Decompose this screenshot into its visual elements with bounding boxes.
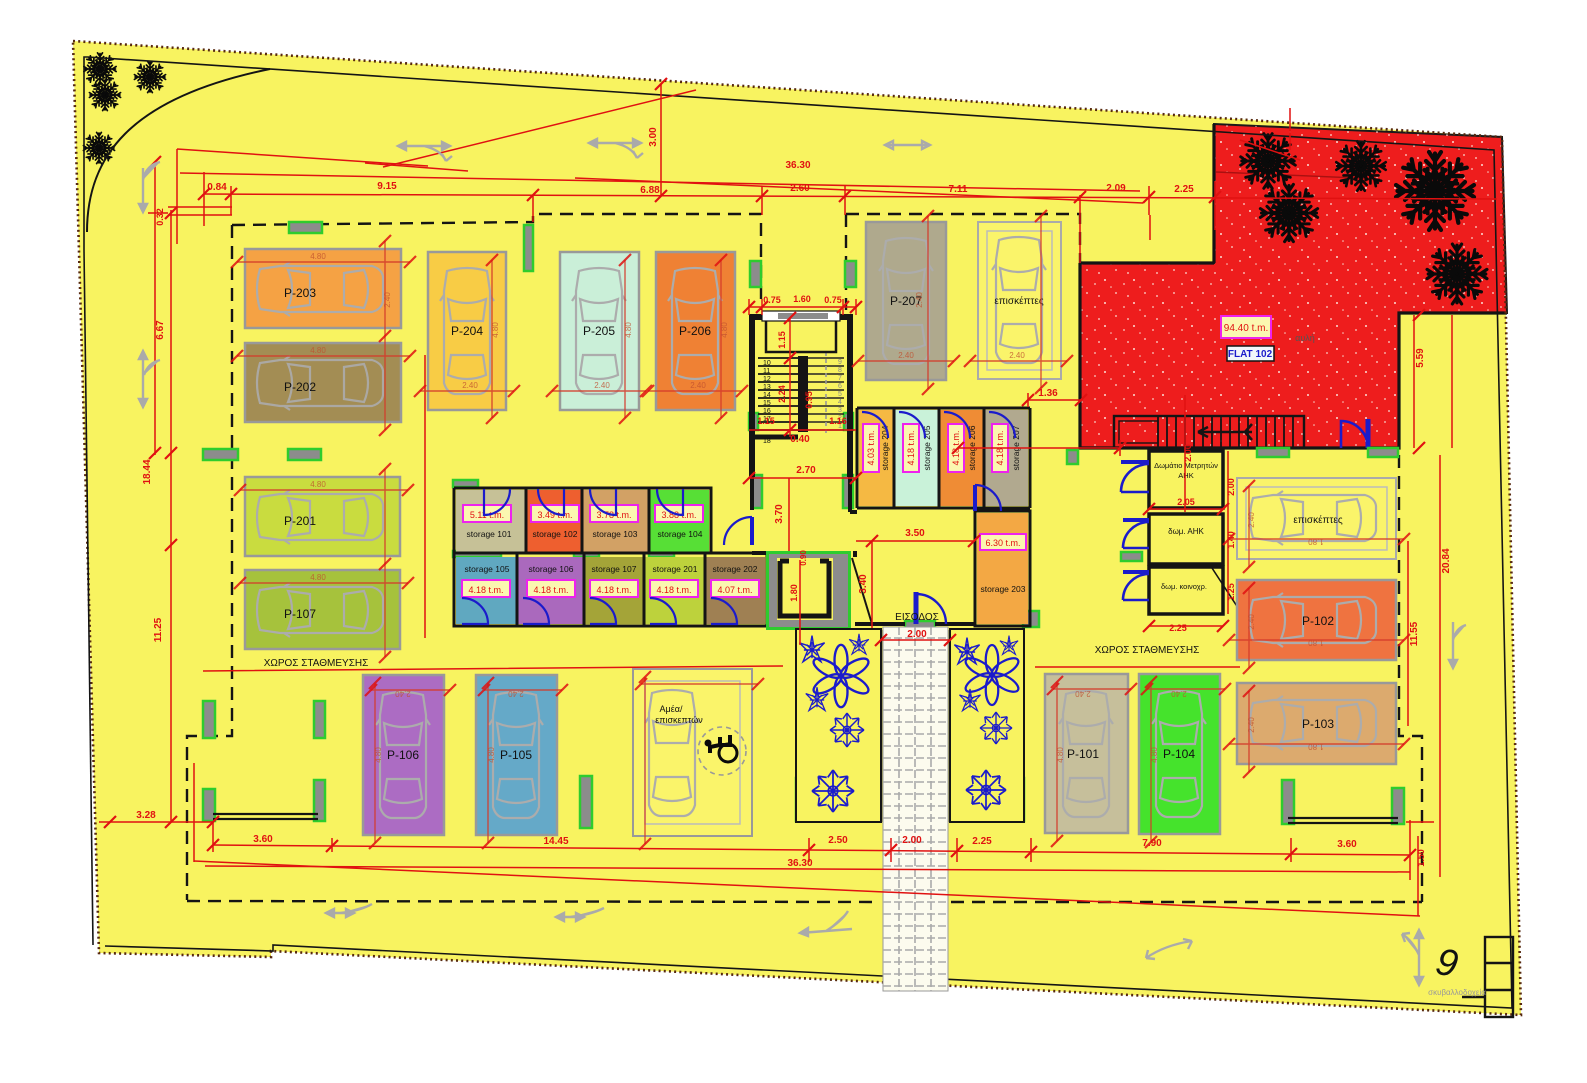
- svg-text:4: 4: [838, 399, 842, 406]
- svg-text:1.15: 1.15: [757, 416, 775, 426]
- svg-text:16: 16: [763, 408, 771, 415]
- svg-text:14.45: 14.45: [543, 836, 568, 847]
- svg-text:2.40: 2.40: [383, 292, 392, 308]
- svg-text:2.70: 2.70: [796, 465, 816, 476]
- svg-text:P-102: P-102: [1302, 614, 1334, 628]
- svg-text:4.18 t.m.: 4.18 t.m.: [656, 585, 691, 595]
- svg-text:P-107: P-107: [284, 607, 316, 621]
- svg-text:2.40: 2.40: [915, 292, 924, 308]
- svg-text:FLAT 102: FLAT 102: [1228, 349, 1273, 360]
- svg-text:2.40: 2.40: [1247, 717, 1256, 733]
- svg-text:13: 13: [763, 384, 771, 391]
- svg-text:7.11: 7.11: [949, 184, 968, 195]
- svg-text:ΧΩΡΟΣ ΣΤΑΘΜΕΥΣΗΣ: ΧΩΡΟΣ ΣΤΑΘΜΕΥΣΗΣ: [264, 658, 369, 669]
- svg-text:0.84: 0.84: [207, 182, 227, 193]
- svg-text:9.15: 9.15: [377, 181, 397, 192]
- svg-text:5.59: 5.59: [1415, 348, 1426, 368]
- svg-text:4.03 t.m.: 4.03 t.m.: [866, 430, 876, 465]
- svg-text:3.60: 3.60: [253, 834, 273, 845]
- svg-text:2.50: 2.50: [828, 835, 848, 846]
- svg-text:storage 106: storage 106: [529, 564, 574, 574]
- svg-text:storage 102: storage 102: [533, 529, 578, 539]
- svg-text:P-103: P-103: [1302, 717, 1334, 731]
- svg-text:5: 5: [838, 391, 842, 398]
- svg-text:4.80: 4.80: [487, 747, 496, 763]
- svg-text:4.80: 4.80: [310, 480, 326, 489]
- svg-text:2.25: 2.25: [972, 836, 992, 847]
- svg-text:4.07 t.m.: 4.07 t.m.: [717, 585, 752, 595]
- svg-text:2.05: 2.05: [1177, 497, 1195, 507]
- svg-text:36.30: 36.30: [785, 160, 810, 171]
- svg-text:3.28: 3.28: [136, 810, 156, 821]
- svg-text:14: 14: [763, 392, 771, 399]
- svg-text:2.00: 2.00: [1226, 478, 1236, 496]
- svg-text:11: 11: [763, 368, 770, 375]
- svg-text:2.60: 2.60: [790, 183, 810, 194]
- svg-text:P-106: P-106: [387, 748, 419, 762]
- svg-text:0.95: 0.95: [804, 391, 814, 409]
- svg-text:P-203: P-203: [284, 286, 316, 300]
- svg-text:7: 7: [838, 375, 842, 382]
- svg-text:0.40: 0.40: [790, 434, 810, 445]
- svg-text:2.40: 2.40: [1171, 689, 1187, 698]
- svg-text:3.40: 3.40: [858, 574, 869, 594]
- svg-text:3: 3: [838, 407, 842, 414]
- svg-text:0.32: 0.32: [155, 208, 165, 226]
- svg-text:storage 202: storage 202: [713, 564, 758, 574]
- svg-text:2.00: 2.00: [1183, 444, 1193, 462]
- svg-text:ΕΙΣΟΔΟΣ: ΕΙΣΟΔΟΣ: [895, 612, 939, 623]
- svg-text:2.24: 2.24: [777, 385, 787, 403]
- svg-text:4.80: 4.80: [720, 322, 729, 338]
- svg-text:P-104: P-104: [1163, 747, 1195, 761]
- svg-text:6.88: 6.88: [640, 185, 660, 196]
- svg-text:P-101: P-101: [1067, 747, 1099, 761]
- svg-text:επισκέπτες: επισκέπτες: [994, 295, 1044, 307]
- svg-text:επισκεπτών: επισκεπτών: [655, 715, 703, 725]
- svg-text:2.40: 2.40: [690, 381, 706, 390]
- svg-text:storage 105: storage 105: [465, 564, 510, 574]
- svg-text:1.25: 1.25: [1226, 583, 1236, 601]
- svg-text:12: 12: [763, 376, 771, 383]
- svg-text:11.25: 11.25: [153, 617, 164, 642]
- svg-text:P-204: P-204: [451, 324, 483, 338]
- svg-text:2.40: 2.40: [508, 689, 524, 698]
- svg-text:1.16: 1.16: [829, 416, 847, 426]
- svg-text:0.75: 0.75: [763, 295, 781, 305]
- svg-text:2.40: 2.40: [594, 381, 610, 390]
- svg-text:4.80: 4.80: [1150, 747, 1159, 763]
- svg-text:1.36: 1.36: [1038, 388, 1058, 399]
- svg-text:4.80: 4.80: [491, 322, 500, 338]
- svg-text:P-201: P-201: [284, 514, 316, 528]
- svg-text:3.60: 3.60: [1337, 839, 1357, 850]
- svg-text:4.80: 4.80: [1056, 747, 1065, 763]
- svg-text:1.80: 1.80: [1308, 638, 1324, 647]
- svg-text:4.80: 4.80: [310, 573, 326, 582]
- svg-text:2.25: 2.25: [1169, 623, 1187, 633]
- svg-text:2.40: 2.40: [462, 381, 478, 390]
- svg-text:2.00: 2.00: [902, 835, 922, 846]
- svg-text:2.40: 2.40: [395, 689, 411, 698]
- svg-text:4.18 t.m.: 4.18 t.m.: [533, 585, 568, 595]
- svg-text:1.15: 1.15: [777, 331, 787, 349]
- svg-text:2.00: 2.00: [907, 629, 927, 640]
- svg-text:2.40: 2.40: [1009, 351, 1025, 360]
- svg-text:P-202: P-202: [284, 380, 316, 394]
- svg-text:4.80: 4.80: [374, 747, 383, 763]
- svg-text:επισκέπτες: επισκέπτες: [1293, 514, 1343, 526]
- svg-text:4.18 t.m.: 4.18 t.m.: [906, 430, 916, 465]
- svg-text:δωμ. ΑΗΚ: δωμ. ΑΗΚ: [1168, 527, 1204, 536]
- svg-text:σκυβαλλοδοχεία: σκυβαλλοδοχεία: [1428, 988, 1486, 997]
- svg-text:10: 10: [763, 360, 771, 367]
- svg-text:4.80: 4.80: [624, 322, 633, 338]
- svg-text:2.09: 2.09: [1106, 183, 1126, 194]
- svg-text:2.40: 2.40: [1075, 689, 1091, 698]
- svg-text:1.60: 1.60: [793, 294, 811, 304]
- svg-text:2.40: 2.40: [898, 351, 914, 360]
- svg-text:6.30 t.m.: 6.30 t.m.: [985, 538, 1020, 548]
- svg-text:storage 104: storage 104: [658, 529, 703, 539]
- svg-text:ΑΗΚ: ΑΗΚ: [1178, 471, 1193, 480]
- svg-text:11.55: 11.55: [1409, 621, 1420, 646]
- svg-text:1.80: 1.80: [1308, 537, 1324, 546]
- svg-text:δωμ. κοινοχρ.: δωμ. κοινοχρ.: [1161, 582, 1207, 591]
- svg-text:P-105: P-105: [500, 748, 532, 762]
- svg-text:ΧΩΡΟΣ ΣΤΑΘΜΕΥΣΗΣ: ΧΩΡΟΣ ΣΤΑΘΜΕΥΣΗΣ: [1095, 645, 1200, 656]
- svg-text:P-205: P-205: [583, 324, 615, 338]
- svg-text:3.49 t.m.: 3.49 t.m.: [537, 510, 572, 520]
- svg-text:18.44: 18.44: [142, 459, 153, 484]
- svg-text:3.50: 3.50: [905, 528, 925, 539]
- svg-text:94.40 t.m.: 94.40 t.m.: [1224, 323, 1268, 334]
- svg-text:2.40: 2.40: [1247, 512, 1256, 528]
- svg-text:storage 101: storage 101: [467, 529, 512, 539]
- svg-text:3.00: 3.00: [648, 127, 659, 147]
- svg-text:4.18 t.m.: 4.18 t.m.: [468, 585, 503, 595]
- svg-text:storage 201: storage 201: [653, 564, 698, 574]
- svg-text:2.40: 2.40: [1247, 614, 1256, 630]
- svg-text:4.80: 4.80: [310, 252, 326, 261]
- svg-text:0.75: 0.75: [824, 295, 842, 305]
- svg-text:storage 103: storage 103: [593, 529, 638, 539]
- svg-text:0.90: 0.90: [799, 550, 808, 566]
- svg-text:storage 107: storage 107: [592, 564, 637, 574]
- svg-text:storage 204: storage 204: [880, 425, 890, 470]
- svg-text:αυλή: αυλή: [1295, 333, 1315, 343]
- svg-text:6.67: 6.67: [155, 320, 166, 340]
- svg-text:1.80: 1.80: [789, 584, 799, 602]
- svg-text:storage 203: storage 203: [981, 584, 1026, 594]
- svg-text:20.84: 20.84: [1441, 548, 1452, 573]
- svg-text:1.80: 1.80: [1308, 742, 1324, 751]
- svg-text:6: 6: [838, 383, 842, 390]
- svg-text:Αμέα/: Αμέα/: [660, 704, 683, 714]
- svg-text:2.25: 2.25: [1174, 184, 1194, 195]
- svg-text:15: 15: [763, 400, 771, 407]
- svg-text:3.70: 3.70: [774, 504, 785, 524]
- svg-text:P-206: P-206: [679, 324, 711, 338]
- svg-text:4.80: 4.80: [310, 346, 326, 355]
- svg-text:36.30: 36.30: [787, 858, 812, 869]
- svg-text:9: 9: [838, 359, 842, 366]
- svg-text:8: 8: [838, 367, 842, 374]
- svg-text:1.50: 1.50: [1416, 849, 1426, 867]
- svg-text:4.18 t.m.: 4.18 t.m.: [596, 585, 631, 595]
- svg-text:18: 18: [763, 438, 771, 445]
